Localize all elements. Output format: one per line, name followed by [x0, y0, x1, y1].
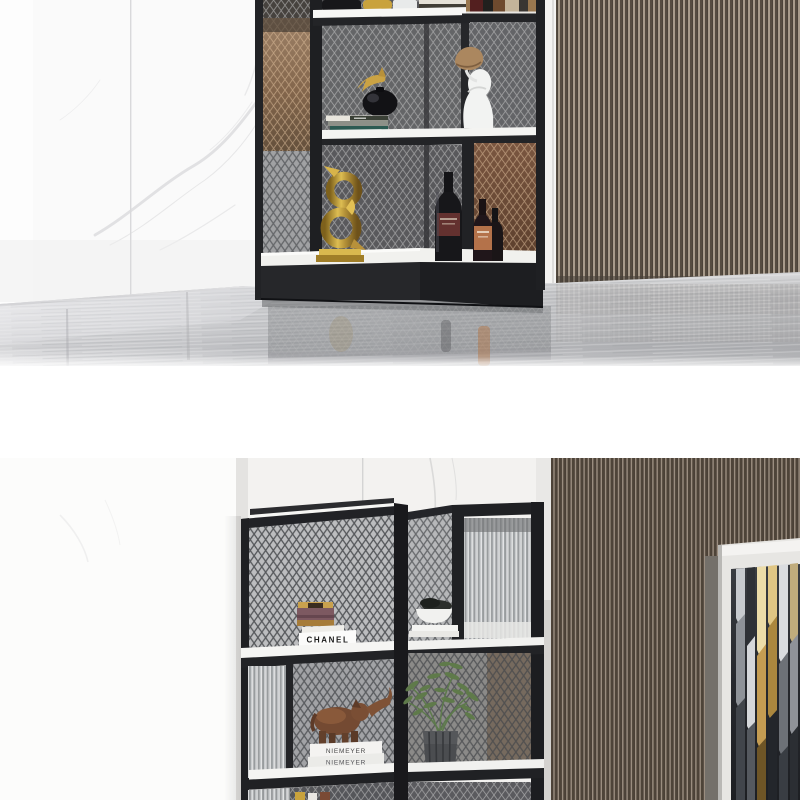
svg-text:NIEMEYER: NIEMEYER — [326, 748, 366, 755]
svg-text:CHANEL: CHANEL — [307, 636, 350, 645]
